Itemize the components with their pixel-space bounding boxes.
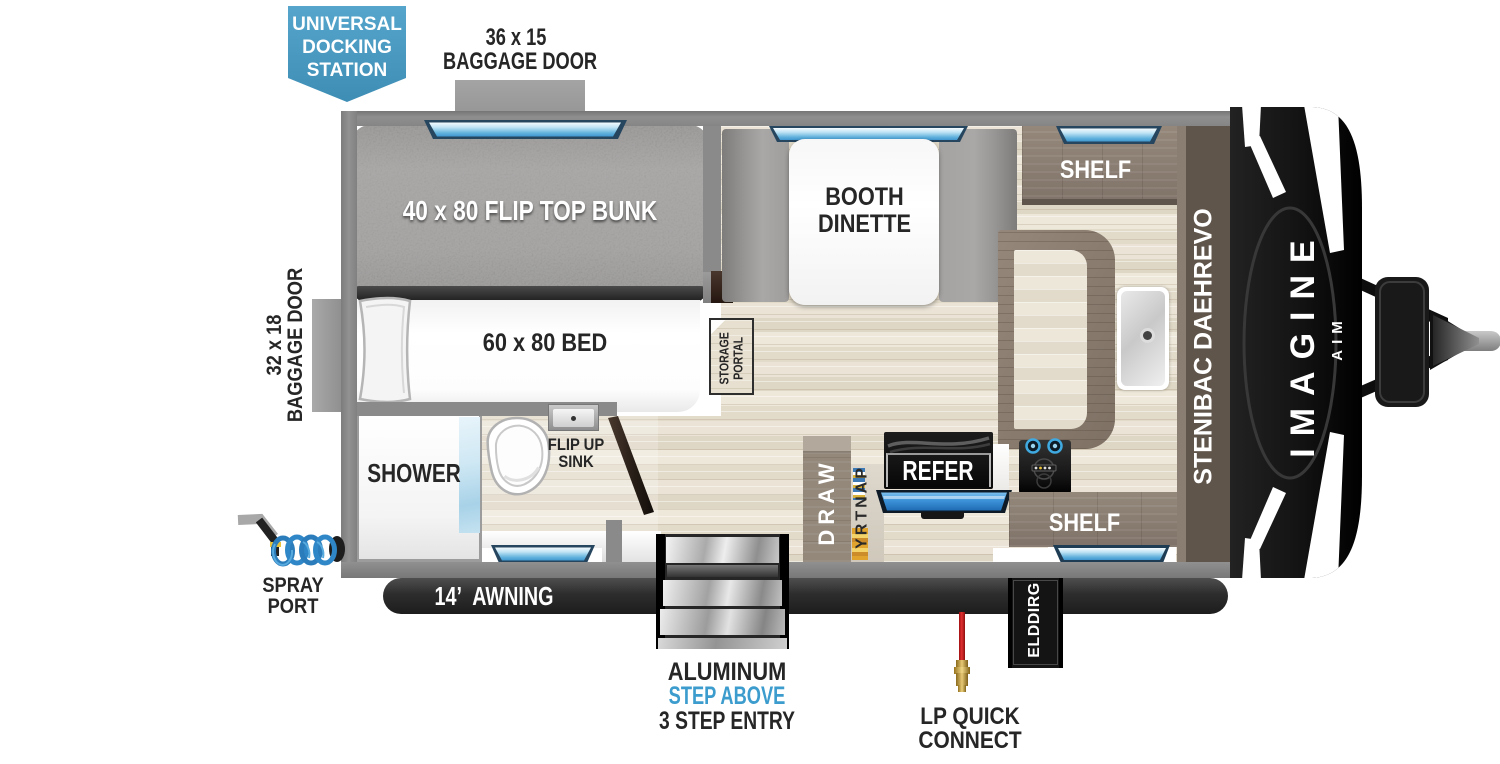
svg-text:UNIVERSAL: UNIVERSAL: [292, 14, 402, 35]
svg-text:STATION: STATION: [307, 60, 388, 81]
svg-text:DOCKING: DOCKING: [302, 37, 392, 58]
svg-text:IMAGINE: IMAGINE: [1284, 228, 1322, 457]
svg-text:AIM: AIM: [1329, 315, 1346, 361]
